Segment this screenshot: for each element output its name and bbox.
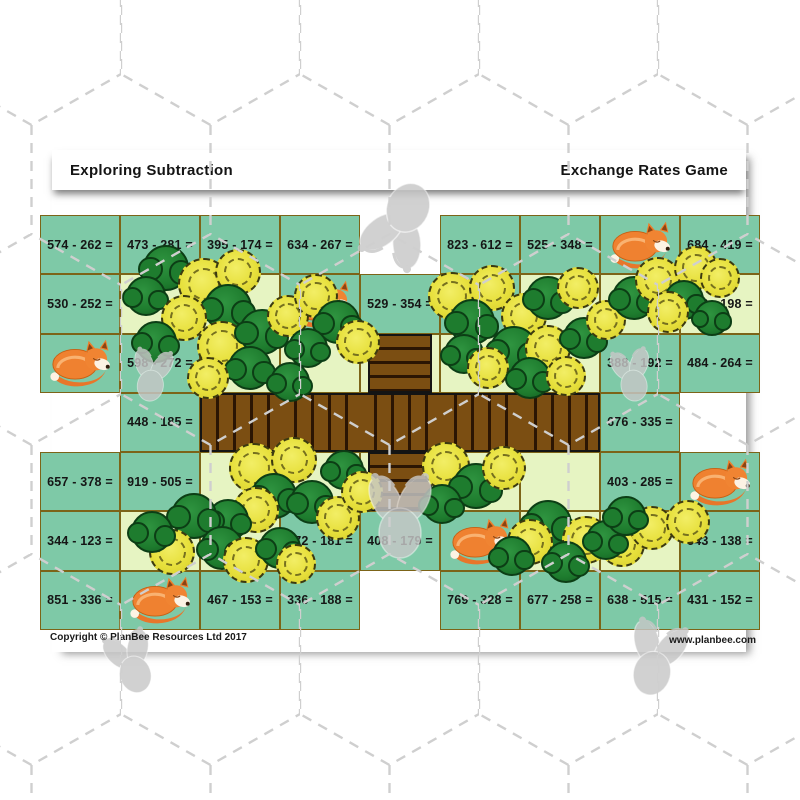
problem-cell: 448 - 185 =: [120, 393, 200, 452]
problem-text: 530 - 252 =: [47, 297, 113, 311]
problem-cell: 677 - 258 =: [520, 571, 600, 630]
bridge-cell: [200, 393, 280, 452]
problem-text: 851 - 336 =: [47, 593, 113, 607]
problem-text: 750 - 489 =: [447, 297, 513, 311]
problem-cell: 750 - 489 =: [440, 274, 520, 333]
problem-text: 769 - 328 =: [447, 593, 513, 607]
sleeping-fox-icon: [283, 278, 357, 330]
problem-cell: 388 - 192 =: [600, 334, 680, 393]
problem-cell: 598 - 272 =: [120, 334, 200, 393]
problem-text: 473 - 281 =: [127, 238, 193, 252]
problem-text: 403 - 285 =: [607, 475, 673, 489]
grass-cell: [120, 274, 200, 333]
problem-cell: 919 - 505 =: [120, 452, 200, 511]
grass-cell: [440, 334, 520, 393]
problem-cell: 684 - 419 =: [680, 215, 760, 274]
empty-gap: [360, 571, 440, 630]
problem-cell: 408 - 179 =: [360, 511, 440, 570]
fox-cell: [40, 334, 120, 393]
problem-cell: 395 - 174 =: [200, 215, 280, 274]
grass-cell: [200, 334, 280, 393]
grass-cell: [280, 452, 360, 511]
problem-cell: 530 - 252 =: [40, 274, 120, 333]
bridge-vertical-planks: [368, 334, 432, 393]
problem-text: 574 - 262 =: [47, 238, 113, 252]
grass-cell: [200, 452, 280, 511]
grass-cell: [280, 334, 360, 393]
problem-text: 823 - 612 =: [447, 238, 513, 252]
problem-text: 634 - 267 =: [287, 238, 353, 252]
problem-cell: 467 - 153 =: [200, 571, 280, 630]
sleeping-fox-icon: [123, 574, 197, 626]
problem-text: 431 - 152 =: [687, 593, 753, 607]
problem-text: 344 - 123 =: [47, 534, 113, 548]
problem-text: 372 - 181 =: [287, 534, 353, 548]
problem-text: 408 - 179 =: [367, 534, 433, 548]
problem-cell: 525 - 348 =: [520, 215, 600, 274]
page-title-left: Exploring Subtraction: [70, 162, 233, 179]
problem-text: 448 - 185 =: [127, 415, 193, 429]
bridge-cell: [440, 393, 520, 452]
problem-text: 395 - 174 =: [207, 238, 273, 252]
problem-cell: 769 - 328 =: [440, 571, 520, 630]
problem-cell: 316 - 198 =: [680, 274, 760, 333]
problem-cell: 473 - 281 =: [120, 215, 200, 274]
problem-text: 676 - 335 =: [607, 415, 673, 429]
copyright-text: Copyright © PlanBee Resources Ltd 2017: [50, 632, 247, 643]
fox-cell: [440, 511, 520, 570]
problem-text: 677 - 258 =: [527, 593, 593, 607]
problem-cell: 638 - 515 =: [600, 571, 680, 630]
bridge-vertical-planks: [368, 452, 432, 511]
fox-cell: [600, 215, 680, 274]
title-band: Exploring Subtraction Exchange Rates Gam…: [52, 150, 746, 190]
problem-cell: 372 - 181 =: [280, 511, 360, 570]
grass-cell: [600, 511, 680, 570]
problem-cell: 634 - 267 =: [280, 215, 360, 274]
problem-text: 919 - 505 =: [127, 475, 193, 489]
problem-cell: 676 - 335 =: [600, 393, 680, 452]
grass-cell: [200, 274, 280, 333]
grass-cell: [440, 452, 520, 511]
bridge-cell: [360, 452, 440, 511]
problem-text: 467 - 153 =: [207, 593, 273, 607]
problem-cell: 344 - 123 =: [40, 511, 120, 570]
problem-text: 638 - 515 =: [607, 593, 673, 607]
game-board: 574 - 262 =473 - 281 =395 - 174 =634 - 2…: [40, 215, 760, 630]
grass-cell: [520, 511, 600, 570]
bridge-cell: [360, 393, 440, 452]
grass-cell: [200, 511, 280, 570]
problem-cell: 431 - 152 =: [680, 571, 760, 630]
problem-text: 529 - 354 =: [367, 297, 433, 311]
sleeping-fox-icon: [683, 456, 757, 508]
problem-text: 657 - 378 =: [47, 475, 113, 489]
website-text: www.planbee.com: [669, 635, 756, 646]
problem-cell: 851 - 336 =: [40, 571, 120, 630]
problem-text: 336 - 188 =: [287, 593, 353, 607]
problem-cell: 484 - 264 =: [680, 334, 760, 393]
page-title-right: Exchange Rates Game: [561, 162, 728, 179]
bridge-cell: [360, 334, 440, 393]
sleeping-fox-icon: [603, 219, 677, 271]
problem-cell: 336 - 188 =: [280, 571, 360, 630]
problem-text: 484 - 264 =: [687, 356, 753, 370]
grass-cell: [600, 274, 680, 333]
bridge-cell: [280, 393, 360, 452]
problem-text: 525 - 348 =: [527, 238, 593, 252]
empty-gap: [40, 393, 120, 452]
problem-text: 598 - 272 =: [127, 356, 193, 370]
problem-text: 543 - 138 =: [687, 534, 753, 548]
fox-cell: [280, 274, 360, 333]
fox-cell: [120, 571, 200, 630]
fox-cell: [680, 452, 760, 511]
problem-text: 388 - 192 =: [607, 356, 673, 370]
problem-cell: 657 - 378 =: [40, 452, 120, 511]
grass-cell: [520, 452, 600, 511]
sleeping-fox-icon: [43, 337, 117, 389]
sleeping-fox-icon: [443, 515, 517, 567]
bridge-cell: [520, 393, 600, 452]
grass-cell: [520, 274, 600, 333]
page: { "page": { "titles": { "left": "Explori…: [0, 0, 800, 800]
grass-cell: [120, 511, 200, 570]
problem-cell: 543 - 138 =: [680, 511, 760, 570]
empty-gap: [680, 393, 760, 452]
grass-cell: [520, 334, 600, 393]
problem-cell: 403 - 285 =: [600, 452, 680, 511]
problem-text: 316 - 198 =: [687, 297, 753, 311]
problem-cell: 574 - 262 =: [40, 215, 120, 274]
problem-cell: 529 - 354 =: [360, 274, 440, 333]
problem-cell: 823 - 612 =: [440, 215, 520, 274]
empty-gap: [360, 215, 440, 274]
problem-text: 684 - 419 =: [687, 238, 753, 252]
